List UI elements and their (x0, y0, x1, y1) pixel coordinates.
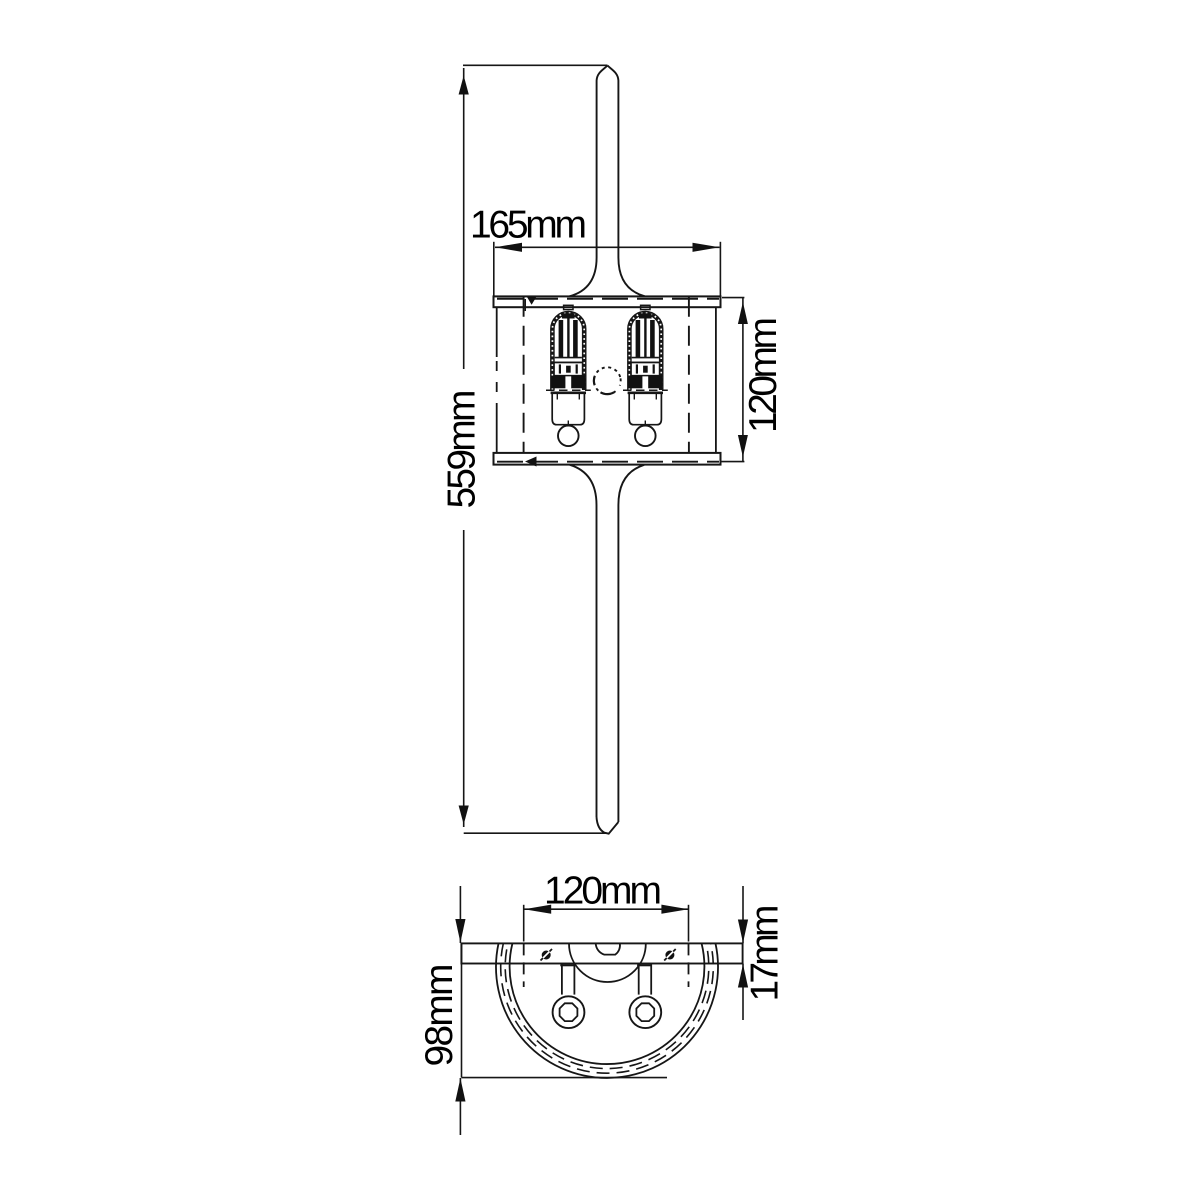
svg-text:120mm: 120mm (544, 870, 662, 913)
svg-text:17mm: 17mm (744, 905, 787, 1002)
svg-text:559mm: 559mm (441, 390, 484, 509)
svg-text:165mm: 165mm (470, 204, 587, 247)
svg-text:98mm: 98mm (418, 964, 461, 1067)
svg-text:120mm: 120mm (742, 317, 785, 433)
